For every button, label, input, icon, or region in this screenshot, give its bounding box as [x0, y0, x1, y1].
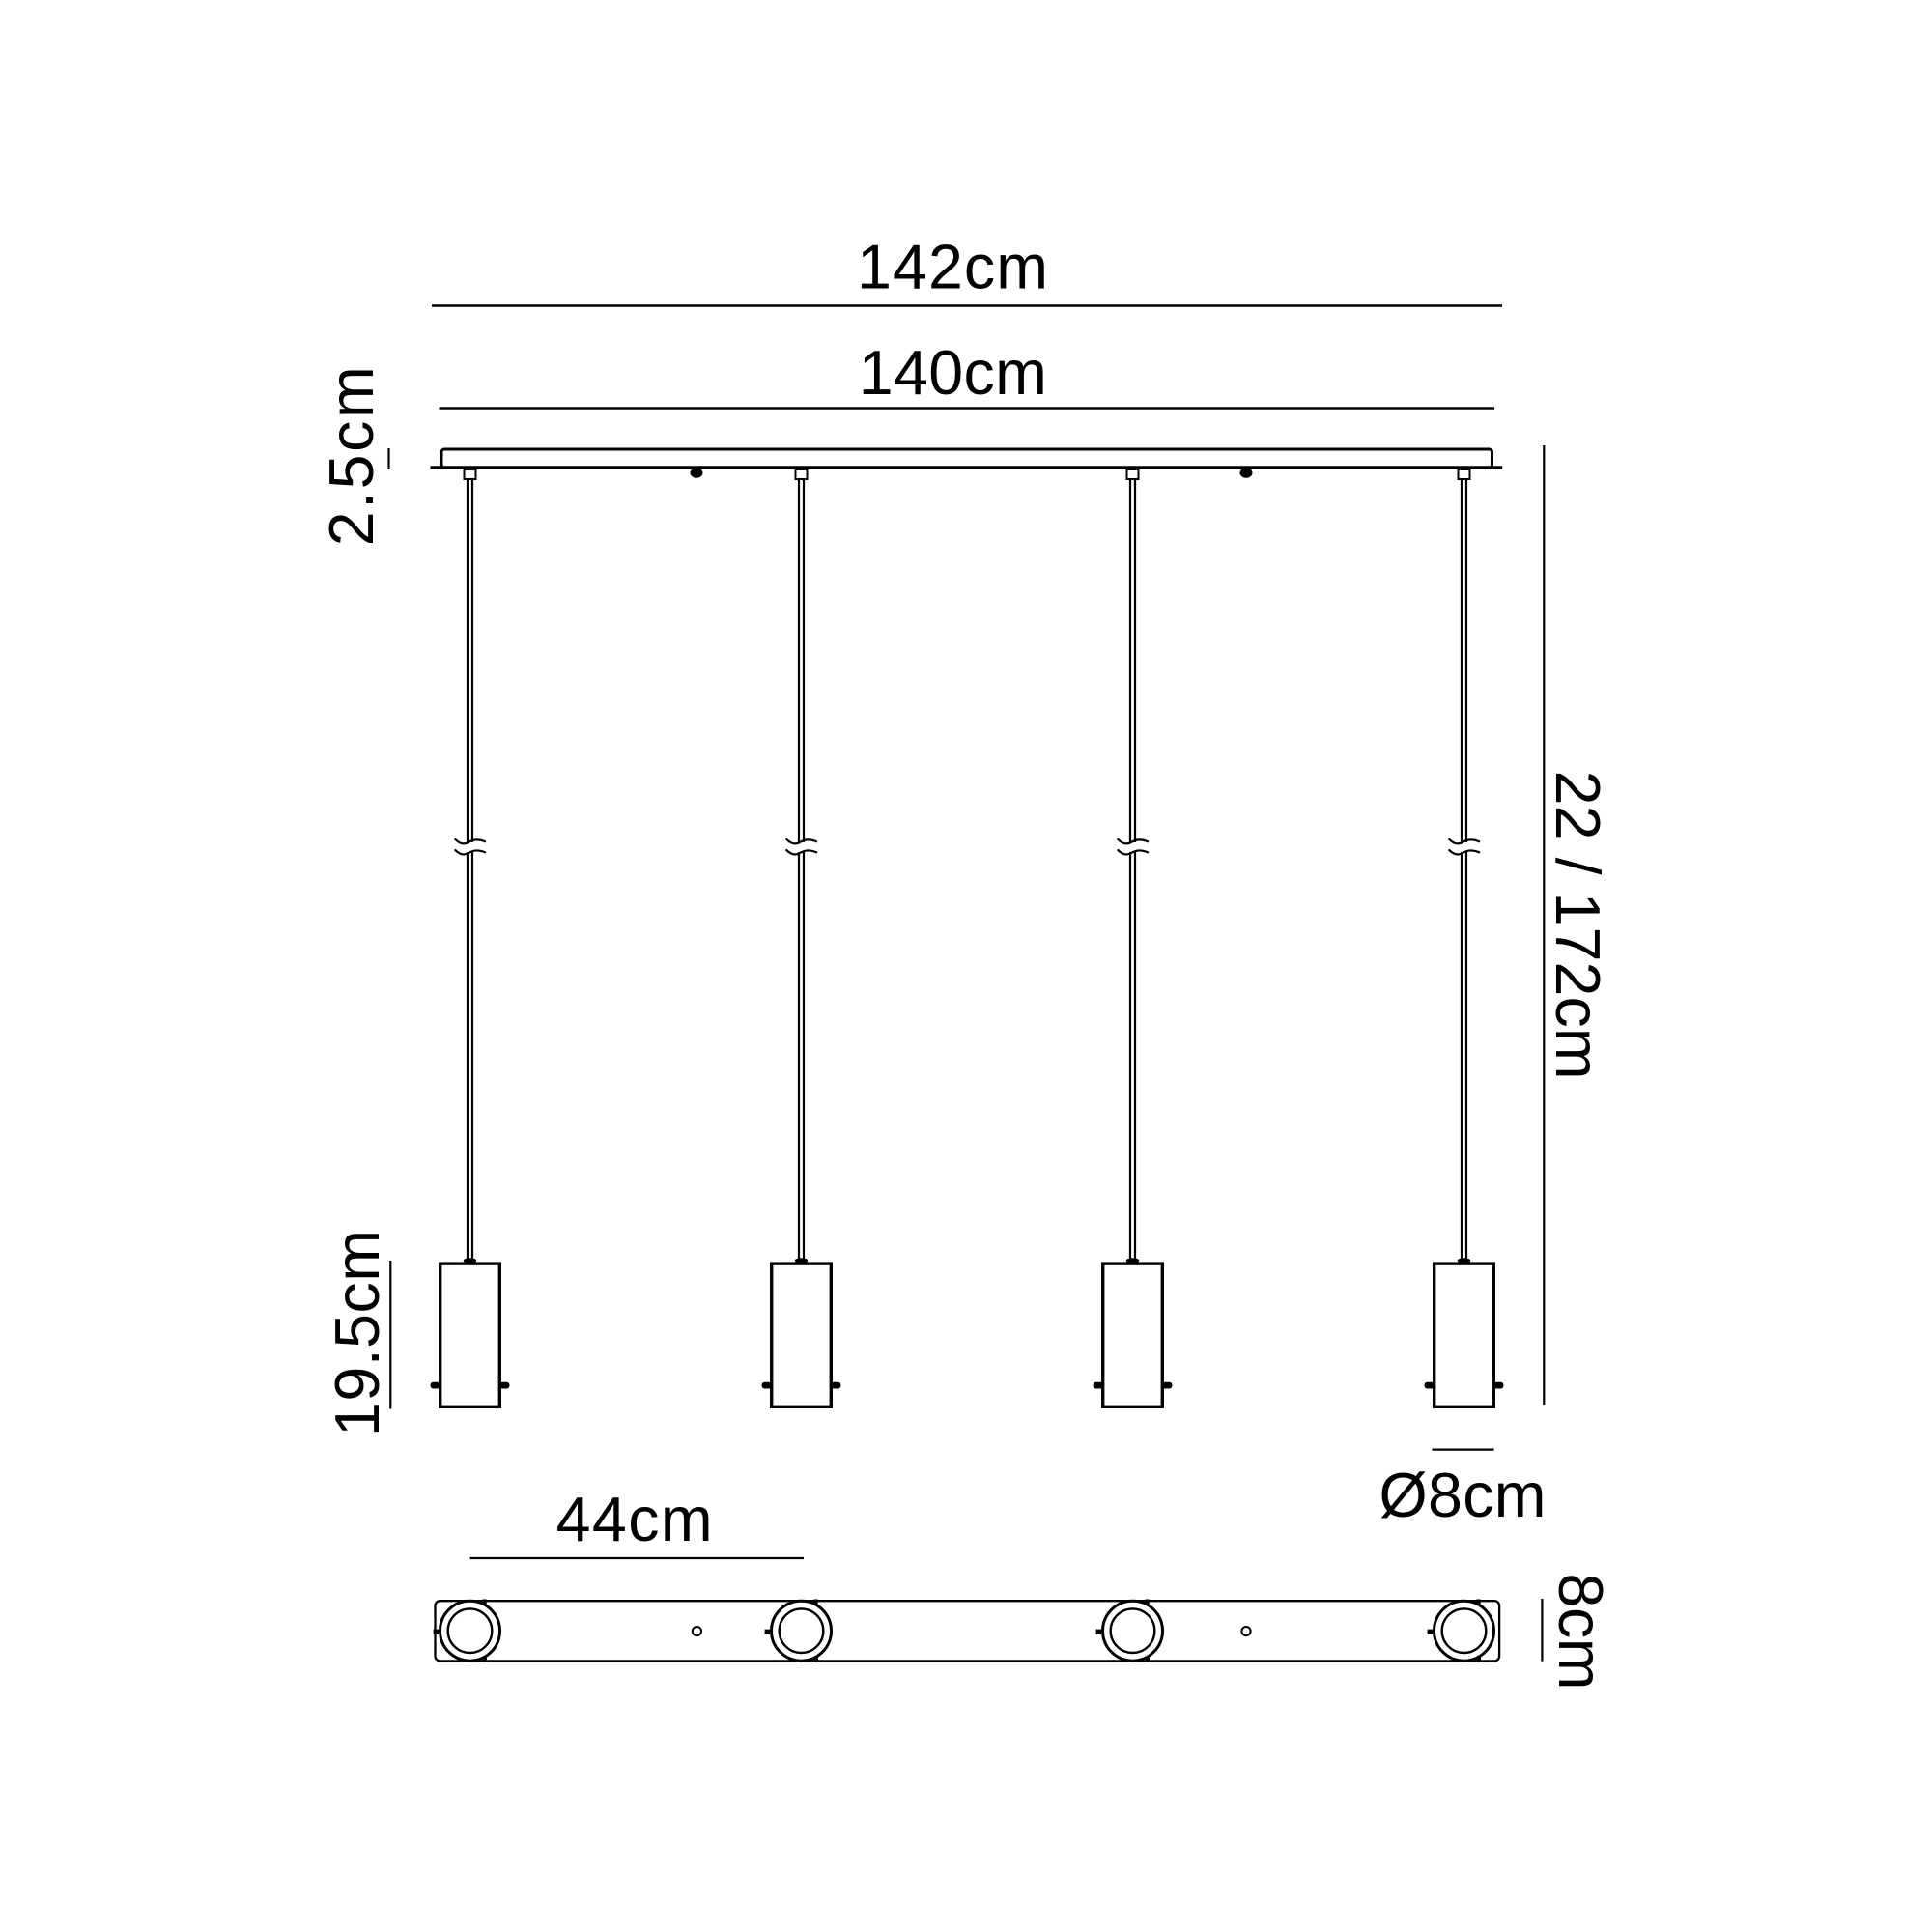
svg-text:2.5cm: 2.5cm [317, 366, 386, 546]
svg-text:22 / 172cm: 22 / 172cm [1543, 771, 1612, 1080]
svg-text:Ø8cm: Ø8cm [1379, 1461, 1547, 1530]
svg-text:44cm: 44cm [556, 1485, 713, 1554]
svg-text:8cm: 8cm [1546, 1574, 1615, 1690]
svg-text:140cm: 140cm [859, 338, 1047, 408]
svg-text:19.5cm: 19.5cm [323, 1230, 392, 1436]
svg-text:142cm: 142cm [857, 232, 1048, 301]
